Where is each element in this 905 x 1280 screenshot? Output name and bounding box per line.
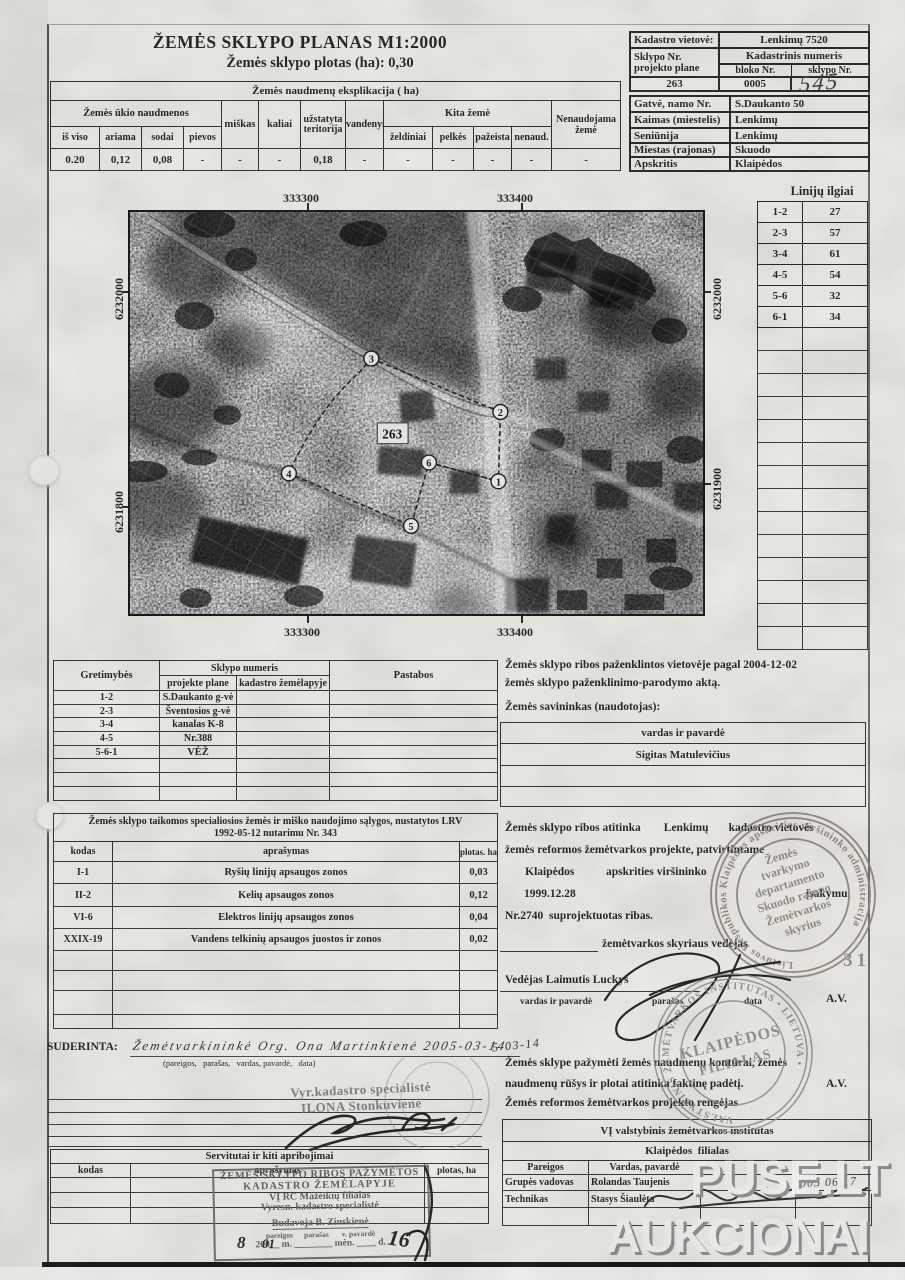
svg-text:3: 3 xyxy=(369,355,374,366)
svg-text:1: 1 xyxy=(496,477,501,488)
svg-text:263: 263 xyxy=(382,427,402,442)
svg-text:6: 6 xyxy=(426,458,431,469)
svg-text:2: 2 xyxy=(498,408,503,419)
svg-text:4: 4 xyxy=(286,469,292,480)
svg-text:5: 5 xyxy=(408,522,413,533)
